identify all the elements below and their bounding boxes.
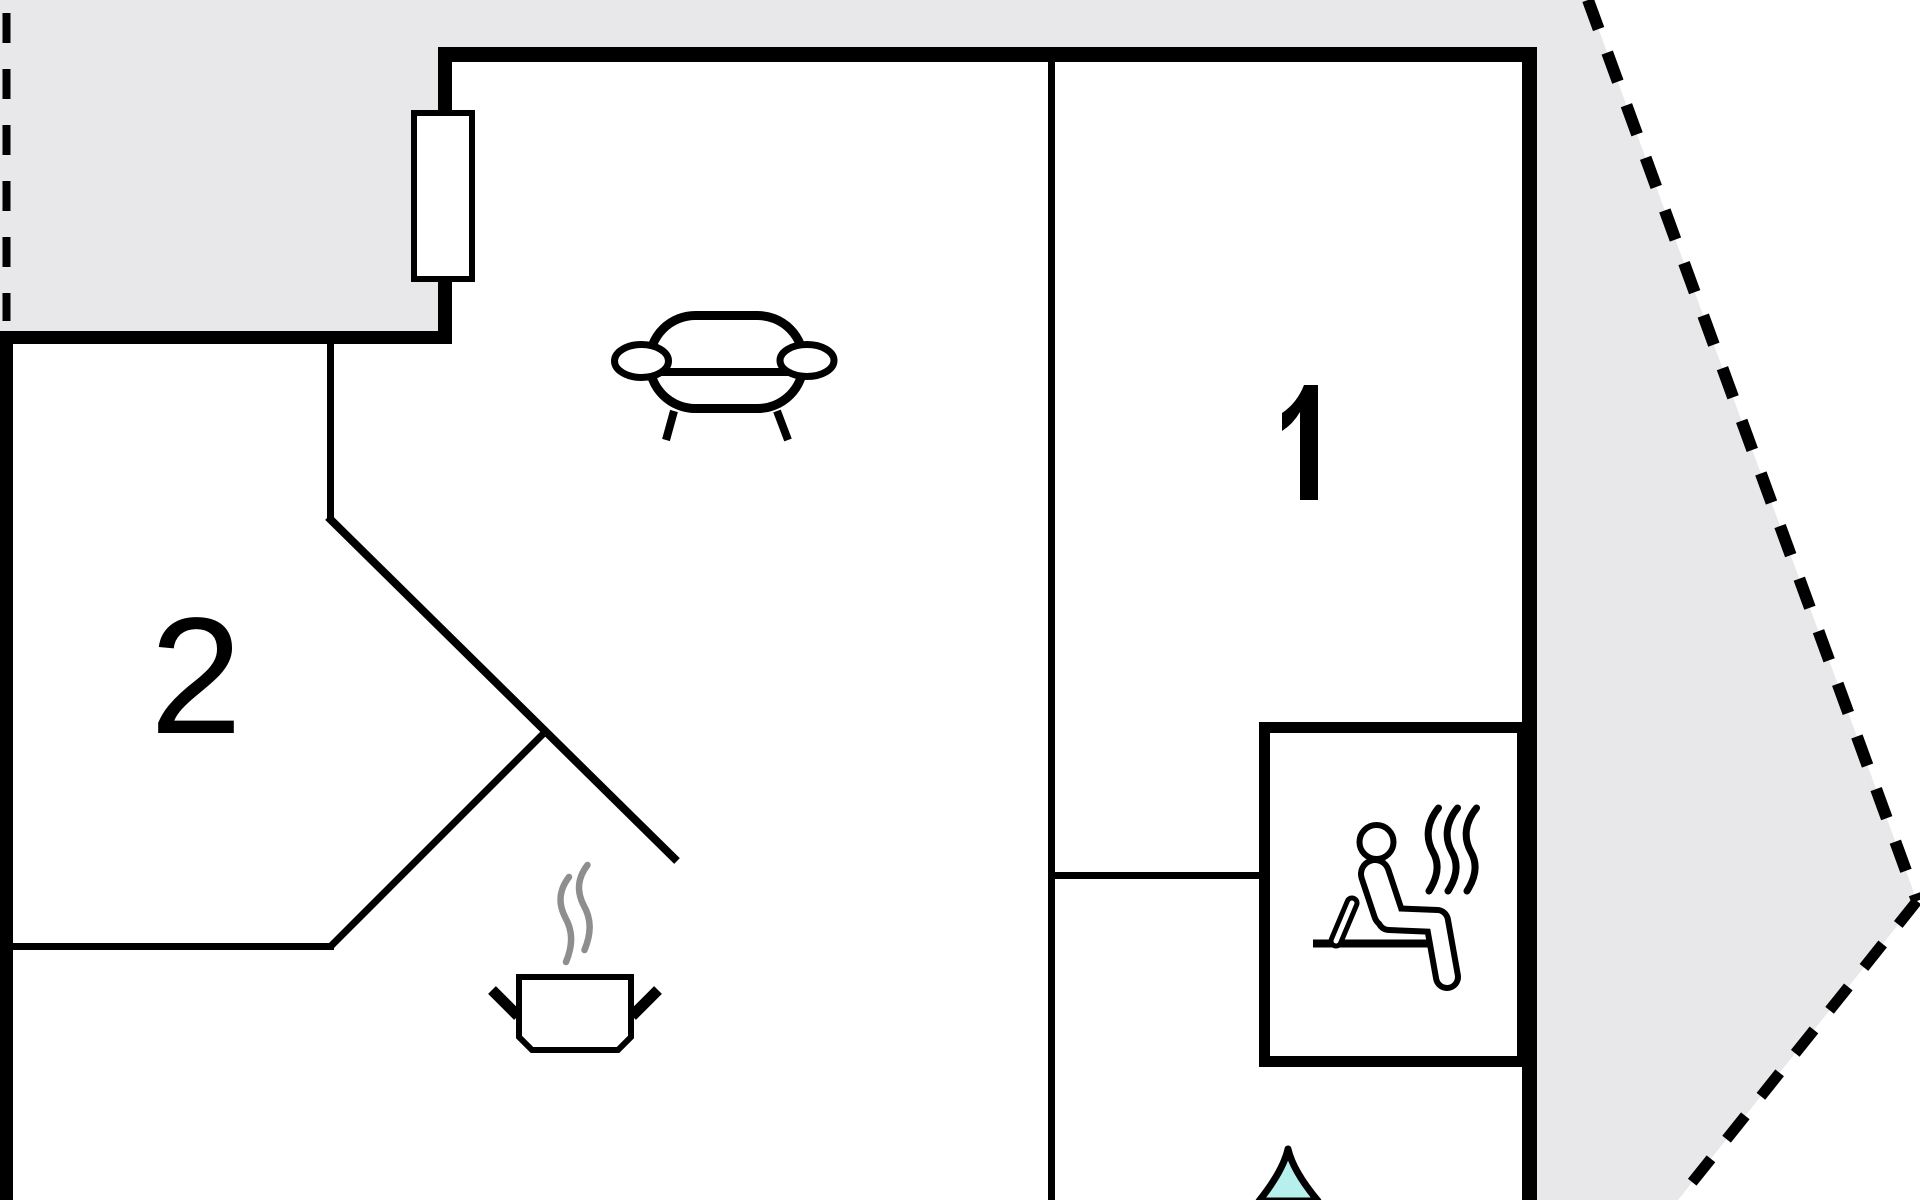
svg-text:2: 2 (150, 584, 242, 769)
